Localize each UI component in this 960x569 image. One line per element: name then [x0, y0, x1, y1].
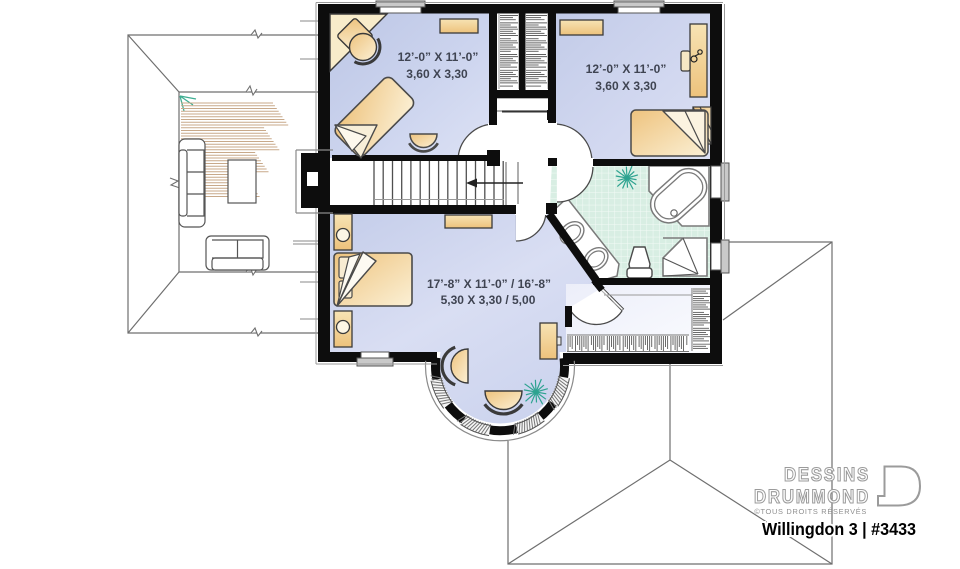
svg-text:Willingdon 3 | #3433: Willingdon 3 | #3433: [762, 519, 916, 539]
svg-text:12’-0” X 11’-0”: 12’-0” X 11’-0”: [586, 62, 667, 76]
svg-text:12’-0” X 11’-0”: 12’-0” X 11’-0”: [398, 50, 479, 64]
svg-text:DRUMMOND: DRUMMOND: [754, 487, 870, 508]
svg-text:3,60 X 3,30: 3,60 X 3,30: [406, 67, 468, 81]
svg-text:DESSINS: DESSINS: [784, 465, 870, 486]
svg-text:©TOUS DROITS RÉSERVÉS: ©TOUS DROITS RÉSERVÉS: [754, 507, 867, 516]
svg-text:3,60 X 3,30: 3,60 X 3,30: [595, 79, 657, 93]
svg-text:5,30 X 3,30 / 5,00: 5,30 X 3,30 / 5,00: [441, 293, 536, 307]
svg-text:17’-8” X 11’-0” / 16’-8”: 17’-8” X 11’-0” / 16’-8”: [427, 277, 551, 291]
